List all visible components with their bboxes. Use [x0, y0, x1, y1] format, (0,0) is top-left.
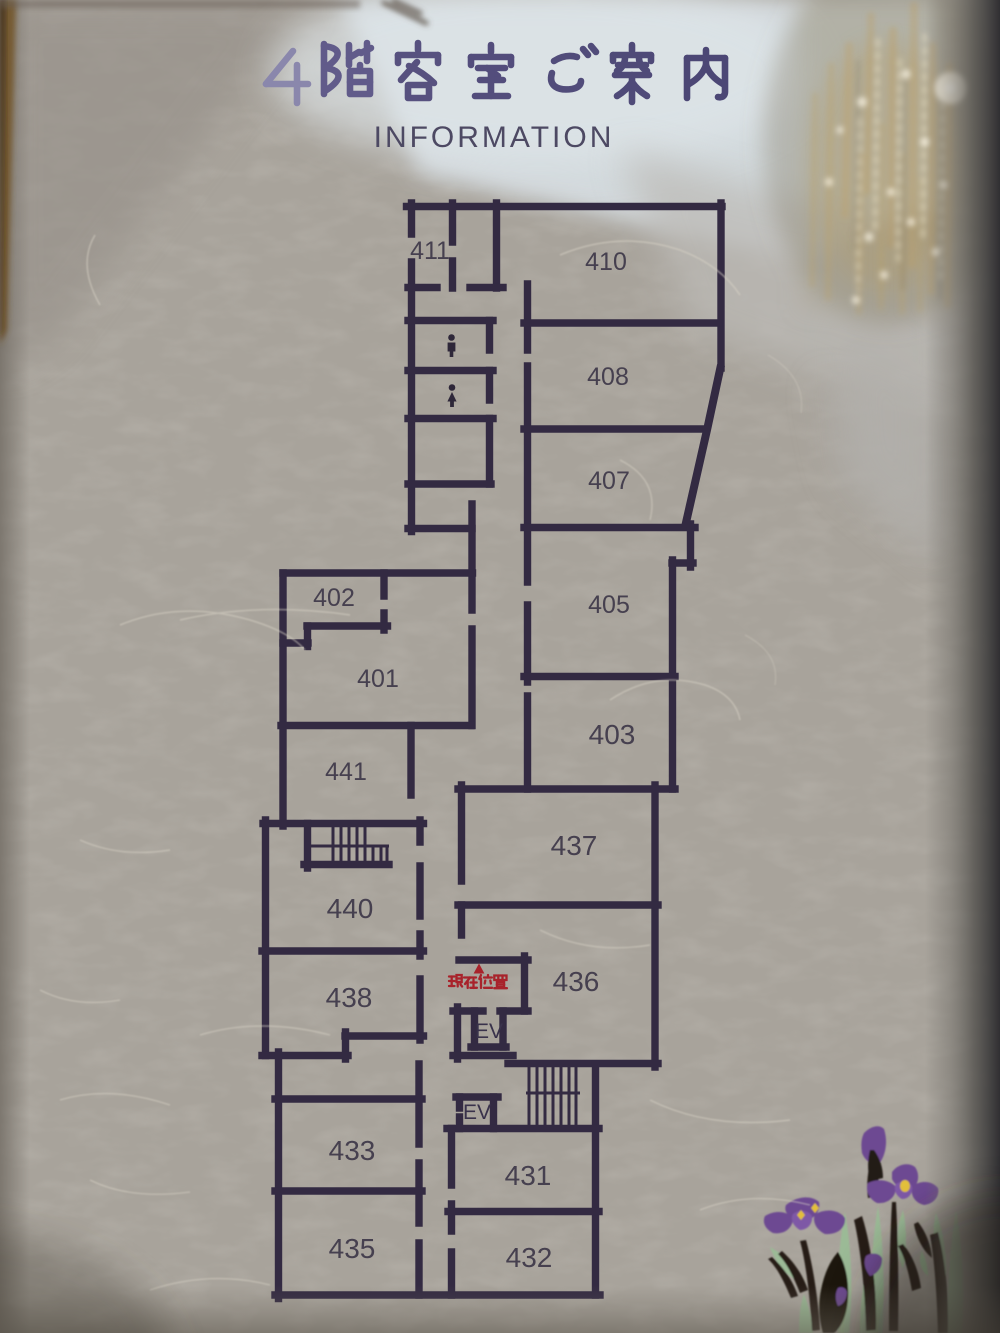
svg-text:401: 401: [357, 665, 399, 693]
svg-text:411: 411: [410, 237, 450, 265]
svg-text:436: 436: [553, 966, 600, 997]
svg-text:438: 438: [326, 982, 373, 1013]
svg-text:407: 407: [588, 467, 630, 495]
svg-text:410: 410: [585, 248, 627, 276]
svg-text:431: 431: [505, 1160, 552, 1191]
svg-text:EV: EV: [475, 1020, 503, 1043]
svg-text:435: 435: [329, 1233, 376, 1264]
svg-text:405: 405: [588, 591, 630, 619]
svg-text:441: 441: [325, 758, 367, 786]
svg-text:432: 432: [506, 1242, 553, 1273]
svg-text:440: 440: [327, 893, 374, 924]
svg-text:437: 437: [551, 830, 598, 861]
svg-text:433: 433: [329, 1135, 376, 1166]
svg-text:402: 402: [313, 584, 355, 612]
svg-text:INFORMATION: INFORMATION: [374, 121, 615, 154]
svg-text:EV: EV: [463, 1101, 491, 1124]
svg-text:403: 403: [589, 719, 636, 750]
svg-text:408: 408: [587, 363, 629, 391]
